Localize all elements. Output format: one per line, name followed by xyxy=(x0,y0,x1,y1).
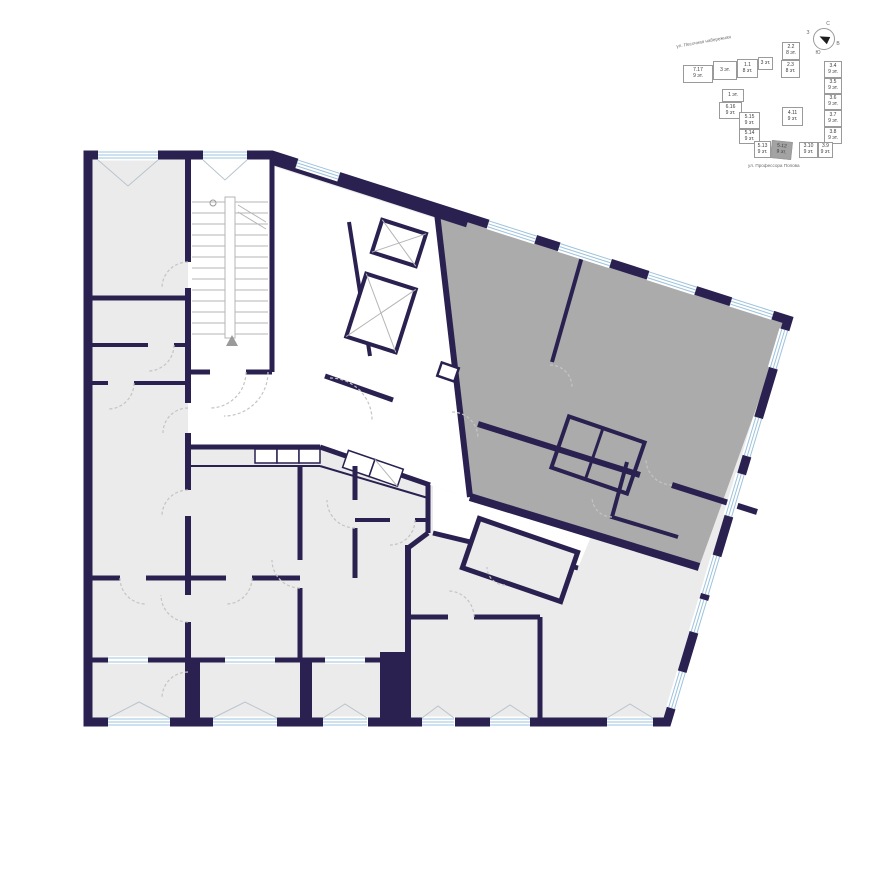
minimap-section-2.2[interactable]: 2.28 эт. xyxy=(782,42,800,60)
street-label-top: ул. Песочная набережная xyxy=(676,34,731,49)
minimap-section-3.9[interactable]: 3.99 эт. xyxy=(818,142,833,158)
minimap-section-7.17[interactable]: 7.179 эт. xyxy=(683,65,713,83)
floorplan-page: ул. Песочная набережная ул. Даля ул. Про… xyxy=(0,0,880,880)
minimap-section-1et[interactable]: 1 эт. xyxy=(722,89,744,102)
compass-north: С xyxy=(826,21,830,27)
minimap-section-5.12-selected[interactable]: 5.129 эт. xyxy=(770,140,793,160)
minimap-section-3.10[interactable]: 3.109 эт. xyxy=(799,142,818,158)
compass-south: Ю xyxy=(815,50,820,56)
minimap-section-3.7[interactable]: 3.79 эт. xyxy=(824,110,842,127)
minimap-section-3.6[interactable]: 3.69 эт. xyxy=(824,94,842,110)
compass-west: З xyxy=(806,30,809,36)
minimap-section-3.4[interactable]: 3.49 эт. xyxy=(824,61,842,78)
minimap-section-2.3[interactable]: 2.38 эт. xyxy=(781,60,800,78)
minimap-section-4.11[interactable]: 4.119 эт. xyxy=(782,107,803,126)
minimap-section-1.1[interactable]: 1.18 эт. xyxy=(737,59,758,78)
compass-east: В xyxy=(836,41,839,47)
minimap-section-3et-b[interactable]: 3 эт. xyxy=(758,57,773,70)
minimap: ул. Песочная набережная ул. Даля ул. Про… xyxy=(660,15,880,175)
minimap-section-5.15[interactable]: 5.159 эт. xyxy=(739,112,760,129)
minimap-section-3.5[interactable]: 3.59 эт. xyxy=(824,78,842,94)
minimap-section-5.13[interactable]: 5.139 эт. xyxy=(754,141,771,158)
minimap-section-3et-a[interactable]: 3 эт. xyxy=(713,61,737,80)
street-label-bottom: ул. Профессора Попова xyxy=(748,163,800,168)
